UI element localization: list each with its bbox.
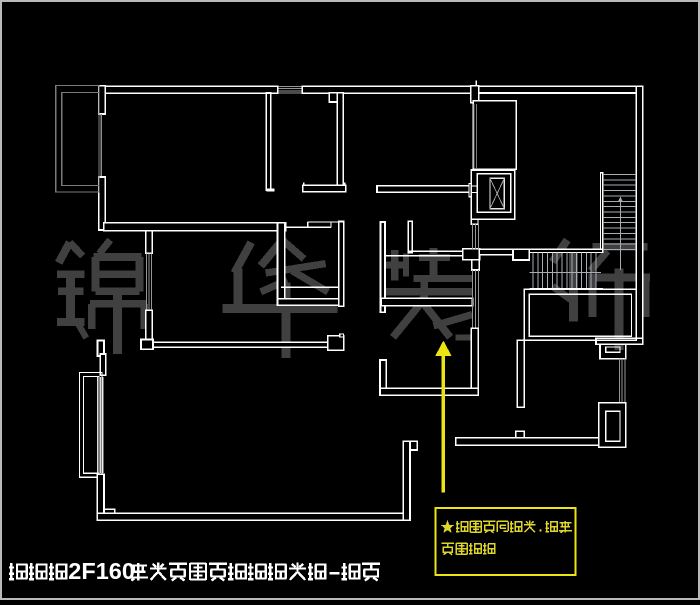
svg-text:2F160: 2F160 — [68, 558, 135, 584]
